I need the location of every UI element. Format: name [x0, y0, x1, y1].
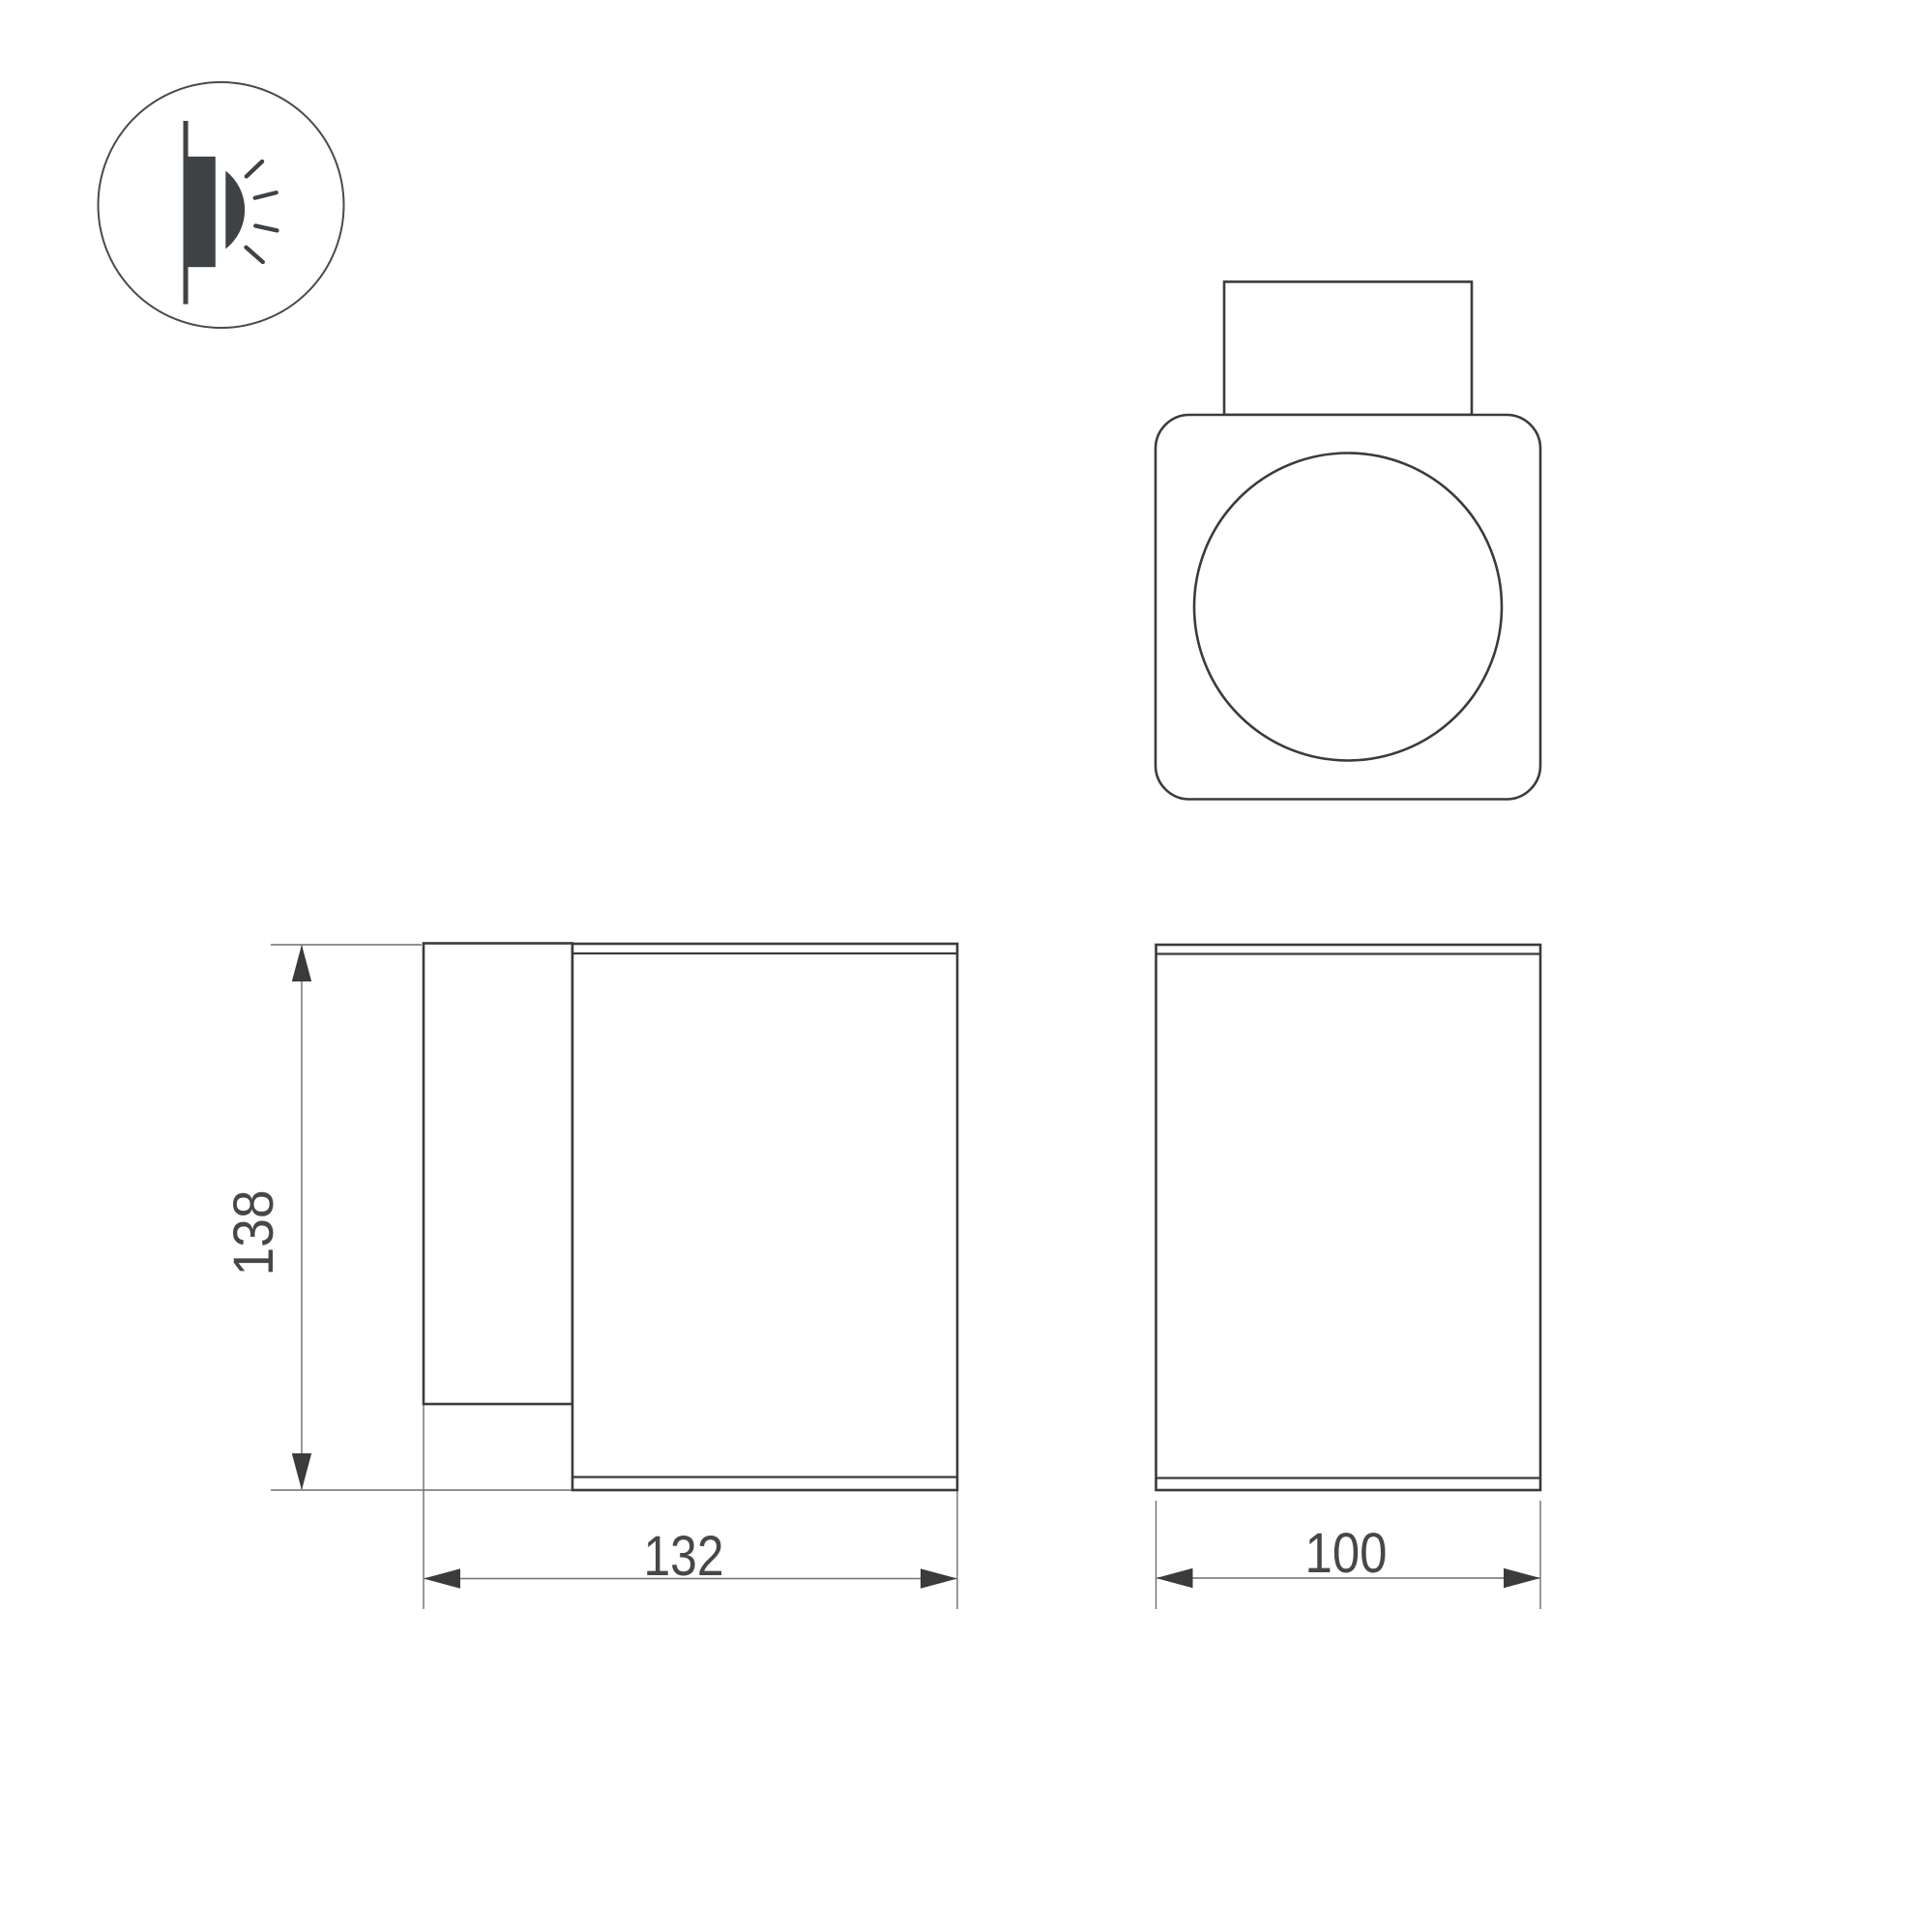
svg-text:100: 100 — [1305, 1522, 1388, 1585]
svg-text:138: 138 — [222, 1190, 285, 1276]
svg-text:132: 132 — [644, 1525, 724, 1588]
